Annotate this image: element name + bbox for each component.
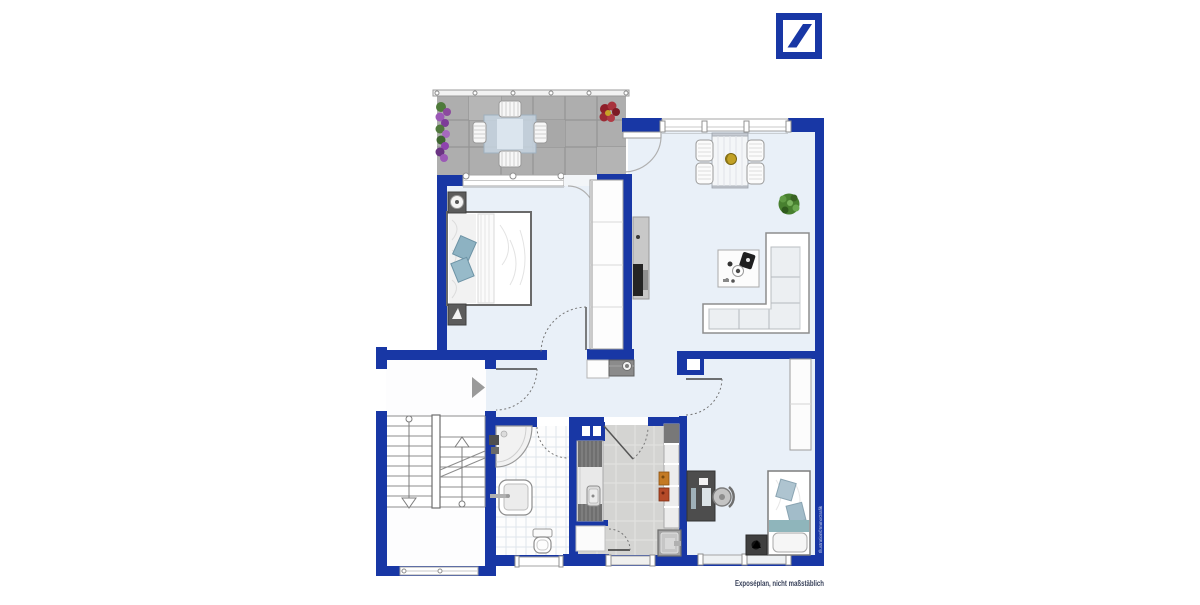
svg-text:Illustration©ImmoGrafik: Illustration©ImmoGrafik <box>817 505 823 553</box>
svg-text:Exposéplan, nicht maßstäblich: Exposéplan, nicht maßstäblich <box>735 578 824 588</box>
